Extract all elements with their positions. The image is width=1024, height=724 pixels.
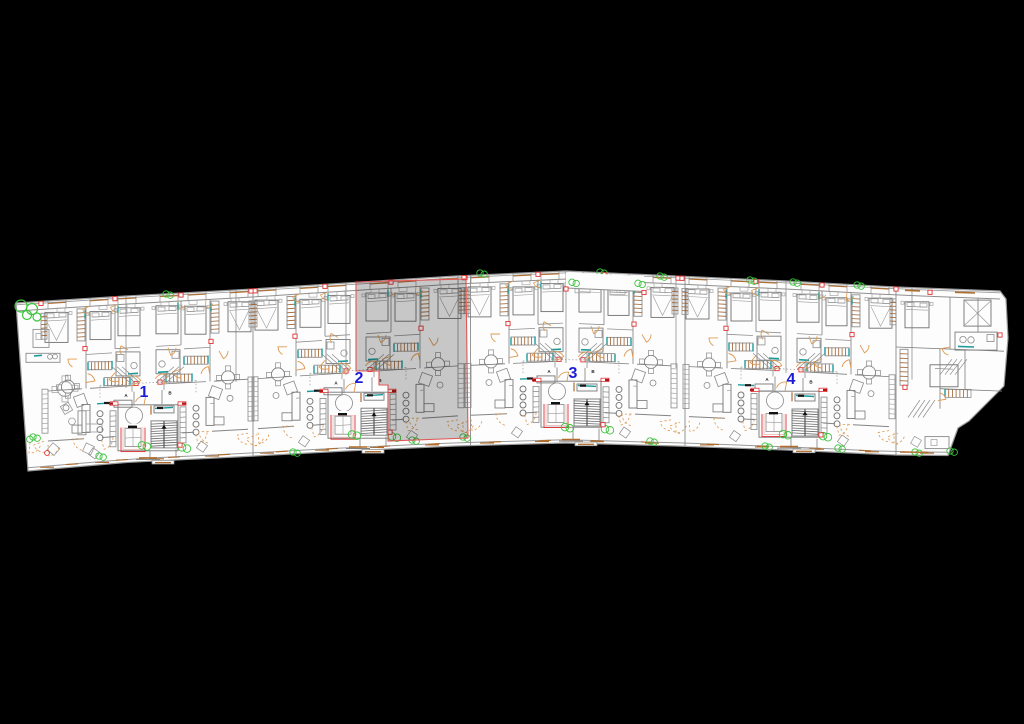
svg-text:4: 4 [787, 371, 796, 388]
svg-text:1: 1 [140, 384, 149, 401]
svg-text:2: 2 [355, 370, 364, 387]
svg-text:3: 3 [569, 365, 578, 382]
